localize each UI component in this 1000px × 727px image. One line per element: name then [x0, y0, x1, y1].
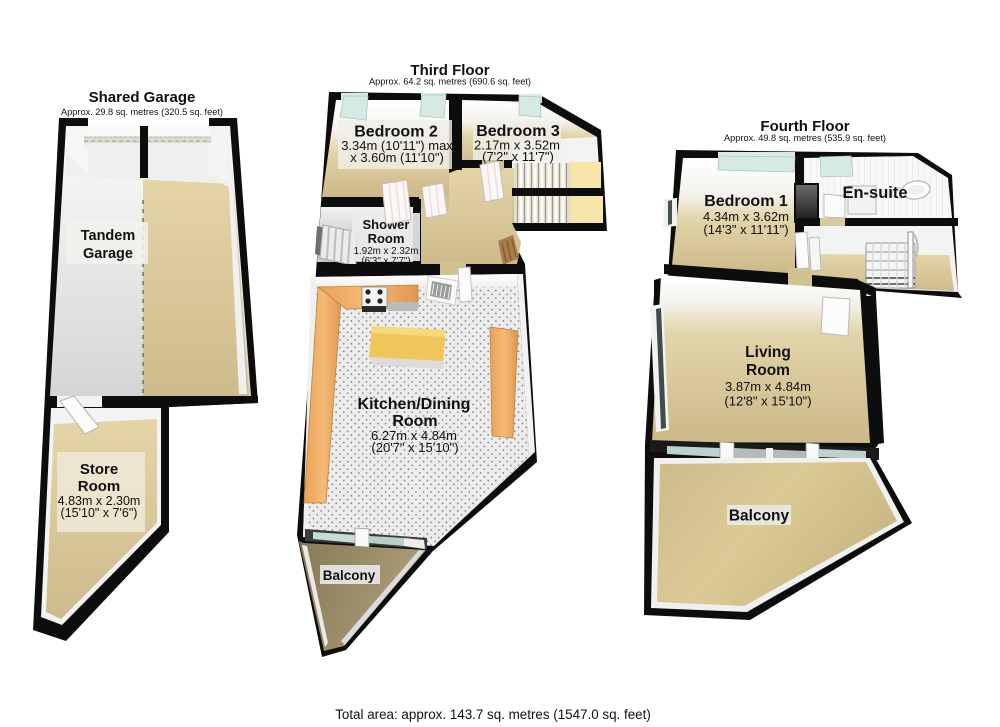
svg-text:(12'8" x 15'10"): (12'8" x 15'10") — [724, 394, 811, 409]
svg-text:Bedroom 1: Bedroom 1 — [704, 193, 788, 210]
svg-text:Total area: approx. 143.7 sq.: Total area: approx. 143.7 sq. metres (15… — [335, 707, 651, 722]
svg-text:Approx. 64.2 sq. metres (690.6: Approx. 64.2 sq. metres (690.6 sq. feet) — [369, 77, 531, 87]
svg-text:Room: Room — [78, 478, 121, 495]
svg-text:(15'10" x 7'6"): (15'10" x 7'6") — [61, 506, 138, 520]
svg-text:Balcony: Balcony — [729, 508, 790, 525]
svg-text:Room: Room — [746, 362, 790, 379]
svg-text:Garage: Garage — [83, 246, 133, 262]
svg-text:Shared Garage: Shared Garage — [89, 89, 196, 106]
svg-text:(14'3" x 11'11"): (14'3" x 11'11") — [703, 222, 788, 237]
svg-text:En-suite: En-suite — [842, 184, 907, 202]
svg-text:Store: Store — [80, 461, 118, 478]
svg-text:Approx. 49.8 sq. metres (535.9: Approx. 49.8 sq. metres (535.9 sq. feet) — [724, 133, 886, 143]
svg-text:Kitchen/Dining: Kitchen/Dining — [358, 396, 471, 413]
svg-text:Tandem: Tandem — [81, 228, 136, 244]
svg-text:3.87m x 4.84m: 3.87m x 4.84m — [725, 379, 811, 394]
svg-text:Living: Living — [745, 344, 791, 361]
svg-text:Room: Room — [368, 231, 405, 246]
svg-text:(20'7" x 15'10"): (20'7" x 15'10") — [371, 440, 458, 455]
svg-text:(7'2" x 11'7"): (7'2" x 11'7") — [482, 149, 554, 164]
svg-text:Approx. 29.8 sq. metres (320.5: Approx. 29.8 sq. metres (320.5 sq. feet) — [61, 107, 223, 117]
svg-text:Balcony: Balcony — [323, 568, 376, 583]
svg-text:x 3.60m (11'10"): x 3.60m (11'10") — [350, 150, 444, 165]
